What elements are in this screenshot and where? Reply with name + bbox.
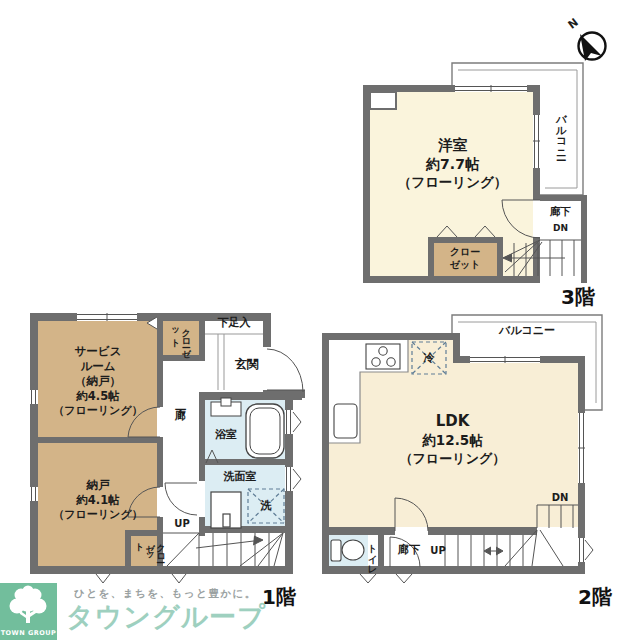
ldk-line1: LDK	[375, 412, 530, 432]
kitchen-sink	[334, 404, 357, 438]
floor1-closet-lower-label: クローゼット	[134, 537, 166, 567]
brand-company-name: タウングループ	[66, 599, 266, 635]
floor3-balcony-label: バルコニー	[554, 107, 568, 155]
service-room-line5: （フローリング）	[40, 404, 156, 419]
service-room-line1: サービス	[40, 344, 156, 359]
floor3-room-size: 約7.7帖	[375, 155, 530, 173]
service-room-line2: ルーム	[40, 359, 156, 374]
bathtub	[246, 404, 284, 458]
floor3-label: 3階	[541, 284, 595, 310]
ldk-line3: （フローリング）	[375, 450, 530, 467]
service-room-line4: 約4.5帖	[40, 389, 156, 404]
floorplan-canvas: N バルコニー 洋室 約7.7帖 （フローリング） 廊下 DN クローゼット 3…	[0, 0, 640, 640]
floor1-up-label: UP	[168, 517, 196, 530]
service-room-line3: （納戸）	[40, 374, 156, 389]
floor2-hallway-label: 廊下	[393, 543, 425, 558]
compass	[579, 33, 606, 62]
floor2-label: 2階	[558, 584, 612, 610]
floorplan-drawing	[0, 0, 640, 640]
fridge-label: 冷	[412, 351, 446, 366]
floor3-room-floor: （フローリング）	[375, 174, 530, 192]
floor1-stairs	[163, 533, 283, 566]
laundry-label: 洗	[255, 499, 277, 514]
floor3-dn-label: DN	[540, 223, 581, 235]
floor2-dn-label: DN	[543, 491, 577, 504]
floor2-balcony-label: バルコニー	[487, 324, 567, 339]
floor3-room-name: 洋室	[375, 136, 530, 155]
stove	[366, 344, 400, 369]
logo-caption: TOWN GROUP	[0, 629, 57, 637]
floor2-toilet-label: トイレ	[366, 537, 379, 569]
floor3-hallway-label: 廊下	[540, 205, 581, 219]
entrance-label: 玄関	[225, 357, 269, 373]
town-group-logo: TOWN GROUP	[0, 583, 57, 640]
storage-line3: （フローリング）	[40, 508, 156, 523]
storage-line2: 約4.1帖	[40, 493, 156, 508]
washroom-label: 洗面室	[205, 470, 275, 485]
storage-line1: 納戸	[40, 478, 156, 493]
floor3-closet-label: クローゼット	[448, 245, 482, 271]
bathroom-label: 浴室	[205, 428, 247, 443]
niche	[370, 92, 396, 109]
floor1-closet-upper-label: クローゼット	[170, 322, 191, 354]
ldk-line2: 約12.5帖	[375, 432, 530, 450]
toilet-fixture	[331, 540, 364, 561]
vanity-unit	[211, 492, 241, 528]
shoe-cabinet-label: 下足入	[205, 316, 263, 331]
floor2-up-label: UP	[426, 544, 450, 557]
